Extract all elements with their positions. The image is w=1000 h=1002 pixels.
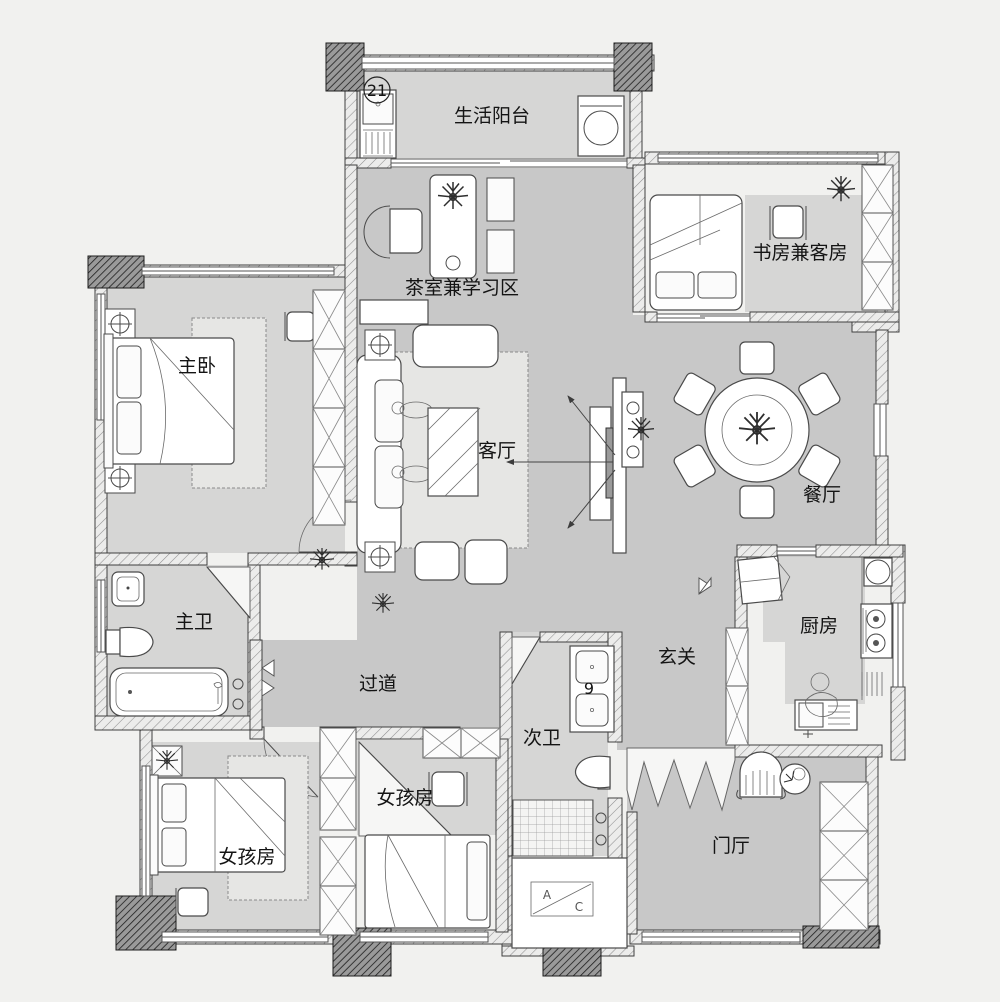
window	[642, 932, 800, 942]
bathtub-icon	[110, 668, 228, 716]
seat-mat	[487, 230, 514, 273]
room-label-living-room: 客厅	[478, 440, 516, 462]
wardrobe-icon	[320, 728, 356, 935]
window	[97, 580, 105, 652]
dining-chair-icon	[740, 486, 774, 518]
window	[142, 766, 150, 896]
ac-bay	[512, 858, 627, 948]
wardrobe-icon	[862, 165, 893, 310]
ac-label-a: A	[543, 888, 552, 902]
window	[874, 404, 886, 456]
room-label-study-guest: 书房兼客房	[752, 242, 847, 264]
wardrobe-icon	[313, 290, 345, 525]
side-table-lamp-icon	[365, 542, 395, 572]
window	[162, 932, 328, 942]
plant-pot-icon	[780, 764, 810, 794]
ac-closet: A C	[512, 858, 627, 948]
room-label-master-bedroom: 主卧	[178, 355, 216, 377]
foyer-closet-icon	[820, 782, 868, 930]
window	[893, 603, 903, 687]
bed-icon	[650, 195, 742, 310]
chair-icon	[176, 888, 208, 916]
room-label-hallway: 过道	[359, 673, 397, 695]
toilet-icon	[106, 627, 153, 656]
floor-kitchen-2	[785, 640, 865, 704]
room-label-master-bath: 主卫	[175, 611, 213, 633]
window	[360, 932, 488, 942]
sliding-door	[777, 547, 816, 555]
chair-icon	[285, 312, 314, 341]
floor-plan-drawing: 21	[0, 0, 1000, 1002]
room-label-entry: 玄关	[658, 646, 696, 668]
window	[142, 267, 334, 275]
room-label-dining-room: 餐厅	[803, 484, 841, 506]
coffee-table-icon	[428, 408, 480, 496]
room-label-life-balcony: 生活阳台	[454, 105, 530, 127]
room-label-tea-area: 茶室兼学习区	[405, 277, 519, 299]
pouf	[465, 540, 507, 584]
washing-machine-icon	[578, 96, 624, 156]
vanity-dimension-text: 9	[584, 679, 594, 698]
window	[362, 57, 614, 69]
chair-icon	[429, 772, 467, 806]
dimension-badge: 21	[364, 77, 390, 103]
low-cabinet	[360, 300, 428, 324]
window	[658, 154, 878, 162]
entry-closet-icon	[726, 628, 748, 745]
pouf	[415, 542, 459, 580]
room-label-kitchen: 厨房	[800, 615, 838, 637]
room-label-girls-mid: 女孩房	[376, 787, 433, 809]
side-table-lamp-icon	[365, 330, 395, 360]
wardrobe-icon	[423, 728, 500, 758]
washbasin-icon	[112, 572, 144, 606]
kitchen-sink-icon	[795, 700, 857, 738]
sliding-door	[657, 314, 750, 322]
stove-icon	[861, 604, 892, 658]
shower-area	[513, 800, 593, 856]
laundry-sink	[360, 90, 396, 158]
room-label-second-bath: 次卫	[523, 727, 561, 749]
room-label-entrance-hall: 门厅	[712, 835, 750, 857]
balcony-dimension-text: 21	[367, 81, 387, 100]
bed-icon	[365, 835, 490, 928]
round-sink-icon	[864, 558, 892, 586]
ac-label-c: C	[575, 900, 583, 914]
sliding-door	[391, 159, 627, 167]
floor-plan-canvas: 21	[0, 0, 1000, 1002]
seat-mat	[487, 178, 514, 221]
room-label-girls-west: 女孩房	[218, 846, 275, 868]
desk-chair-icon	[770, 206, 806, 240]
dining-chair-icon	[740, 342, 774, 374]
